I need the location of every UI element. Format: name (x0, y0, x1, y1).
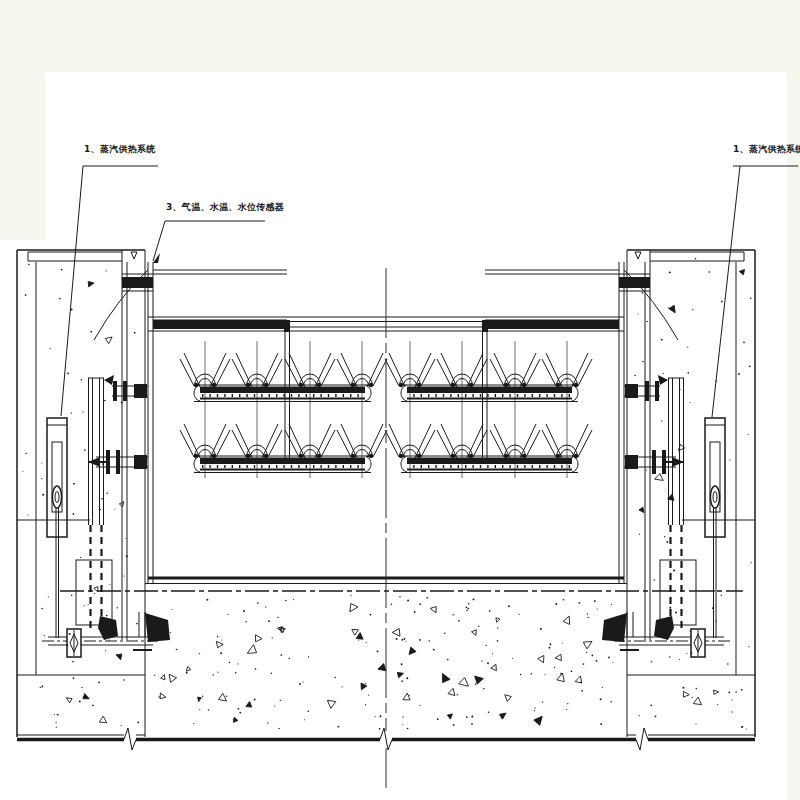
leader-line (61, 166, 83, 416)
callout-steam-right: 1、蒸汽供热系统 (733, 144, 800, 154)
technical-drawing: 1、蒸汽供热系统 3、气温、水温、水位传感器 1、蒸汽供热系统 (0, 0, 800, 800)
right-structure (385, 250, 755, 750)
break-symbol-center (380, 728, 392, 750)
callout-steam-left: 1、蒸汽供热系统 (84, 144, 156, 154)
concrete-stipple (22, 258, 751, 730)
callout-sensors: 3、气温、水温、水位传感器 (166, 202, 285, 212)
left-structure (17, 250, 387, 750)
